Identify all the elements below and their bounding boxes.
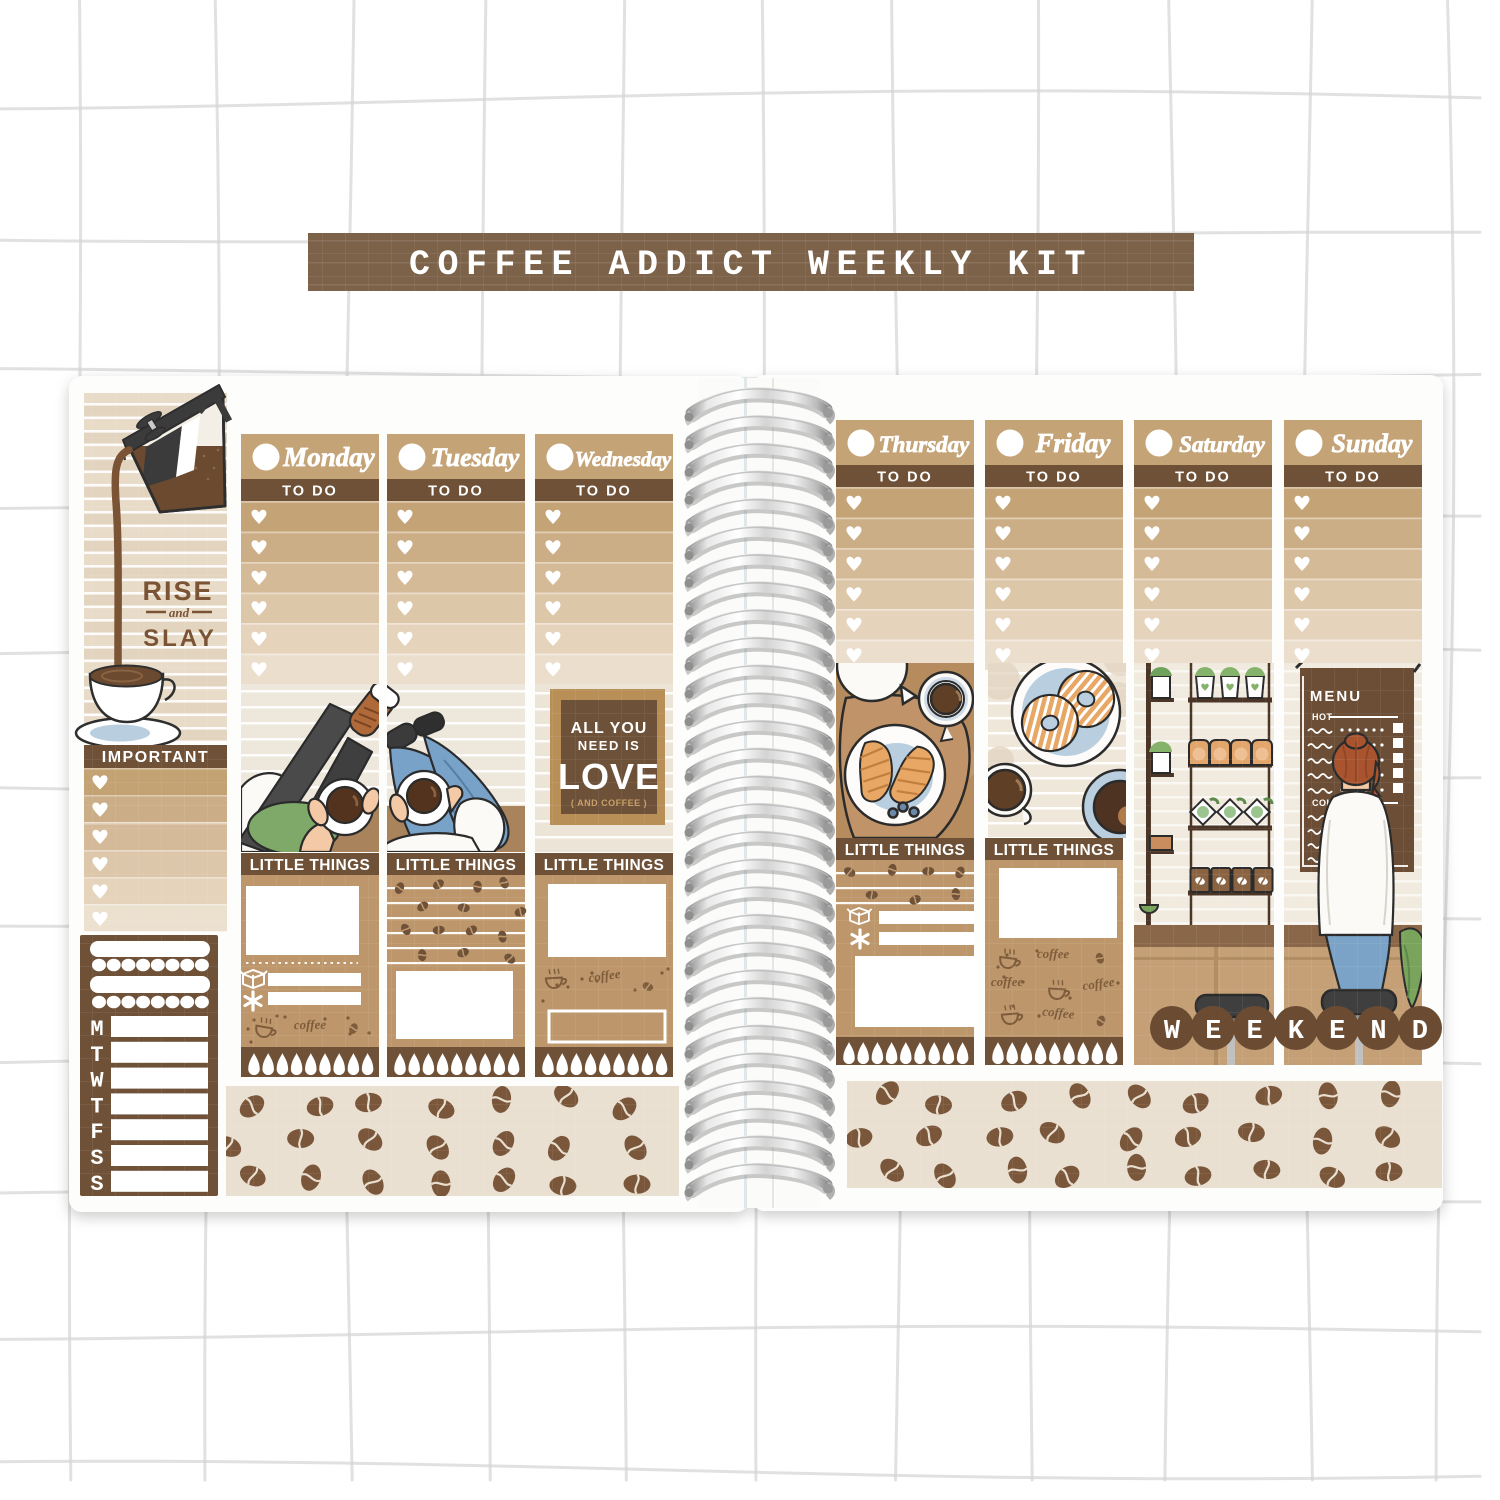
svg-text:LITTLE THINGS: LITTLE THINGS bbox=[250, 857, 371, 874]
svg-text:TO DO: TO DO bbox=[428, 484, 484, 500]
svg-text:RISE: RISE bbox=[142, 576, 213, 606]
svg-text:COFFEE ADDICT WEEKLY KIT: COFFEE ADDICT WEEKLY KIT bbox=[409, 245, 1093, 285]
svg-text:D: D bbox=[1412, 1017, 1428, 1047]
svg-text:( AND COFFEE ): ( AND COFFEE ) bbox=[571, 798, 647, 808]
svg-text:E: E bbox=[1329, 1017, 1345, 1047]
svg-text:Saturday: Saturday bbox=[1179, 432, 1265, 457]
svg-text:Sunday: Sunday bbox=[1332, 429, 1413, 458]
svg-text:Thursday: Thursday bbox=[879, 432, 971, 457]
svg-text:SLAY: SLAY bbox=[143, 625, 217, 652]
svg-text:E: E bbox=[1205, 1017, 1221, 1047]
svg-text:E: E bbox=[1246, 1017, 1262, 1047]
svg-text:TO DO: TO DO bbox=[576, 484, 632, 500]
svg-text:TO DO: TO DO bbox=[877, 470, 933, 486]
svg-text:Wednesday: Wednesday bbox=[575, 447, 672, 471]
svg-text:Tuesday: Tuesday bbox=[431, 443, 520, 472]
svg-text:Friday: Friday bbox=[1034, 428, 1111, 458]
svg-text:LITTLE THINGS: LITTLE THINGS bbox=[396, 857, 517, 874]
svg-text:TO DO: TO DO bbox=[1026, 470, 1082, 486]
svg-text:W: W bbox=[1164, 1017, 1181, 1047]
svg-text:ALL YOU: ALL YOU bbox=[571, 720, 648, 737]
svg-text:Monday: Monday bbox=[282, 442, 376, 472]
svg-text:TO DO: TO DO bbox=[1175, 470, 1231, 486]
svg-text:and: and bbox=[169, 605, 190, 620]
svg-text:LITTLE THINGS: LITTLE THINGS bbox=[994, 842, 1115, 859]
svg-text:LITTLE THINGS: LITTLE THINGS bbox=[845, 842, 966, 859]
svg-text:LITTLE THINGS: LITTLE THINGS bbox=[544, 857, 665, 874]
svg-text:K: K bbox=[1288, 1017, 1305, 1047]
svg-text:NEED IS: NEED IS bbox=[578, 738, 641, 753]
svg-text:LOVE: LOVE bbox=[558, 756, 660, 797]
svg-text:TO DO: TO DO bbox=[1325, 470, 1381, 486]
svg-text:N: N bbox=[1370, 1017, 1386, 1047]
svg-text:TO DO: TO DO bbox=[282, 484, 338, 500]
